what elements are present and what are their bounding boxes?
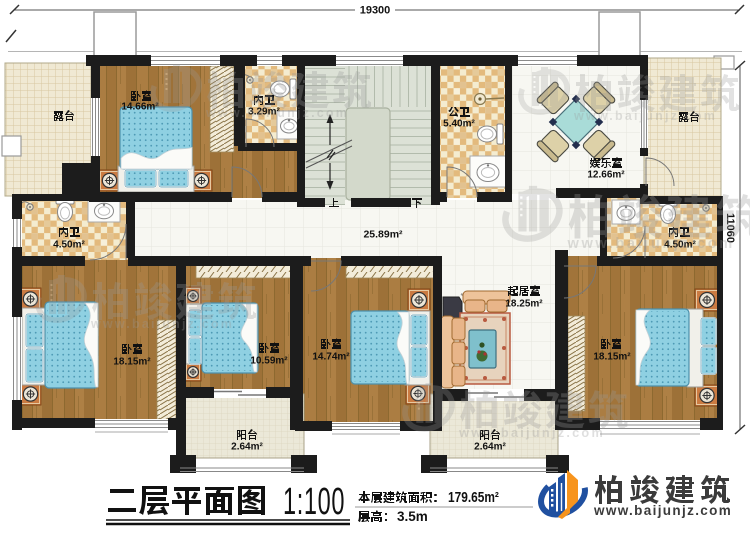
svg-text:www.baijunjz.com: www.baijunjz.com: [593, 503, 732, 518]
svg-text:18.15m²: 18.15m²: [593, 352, 631, 363]
svg-text:18.15m²: 18.15m²: [113, 357, 151, 368]
svg-text:25.89m²: 25.89m²: [363, 229, 403, 241]
svg-text:1:100: 1:100: [283, 479, 345, 522]
svg-text:3.5m: 3.5m: [397, 509, 428, 524]
svg-text:4.50m²: 4.50m²: [53, 240, 85, 251]
svg-text:179.65m²: 179.65m²: [448, 489, 499, 505]
svg-text:18.25m²: 18.25m²: [505, 299, 543, 310]
svg-text:2.64m²: 2.64m²: [231, 442, 263, 453]
svg-text:14.74m²: 14.74m²: [312, 352, 350, 363]
svg-text:12.66m²: 12.66m²: [587, 170, 625, 181]
svg-text:5.40m²: 5.40m²: [443, 119, 475, 130]
svg-text:19300: 19300: [360, 4, 391, 16]
svg-text:2.64m²: 2.64m²: [474, 442, 506, 453]
svg-text:10.59m²: 10.59m²: [250, 356, 288, 367]
